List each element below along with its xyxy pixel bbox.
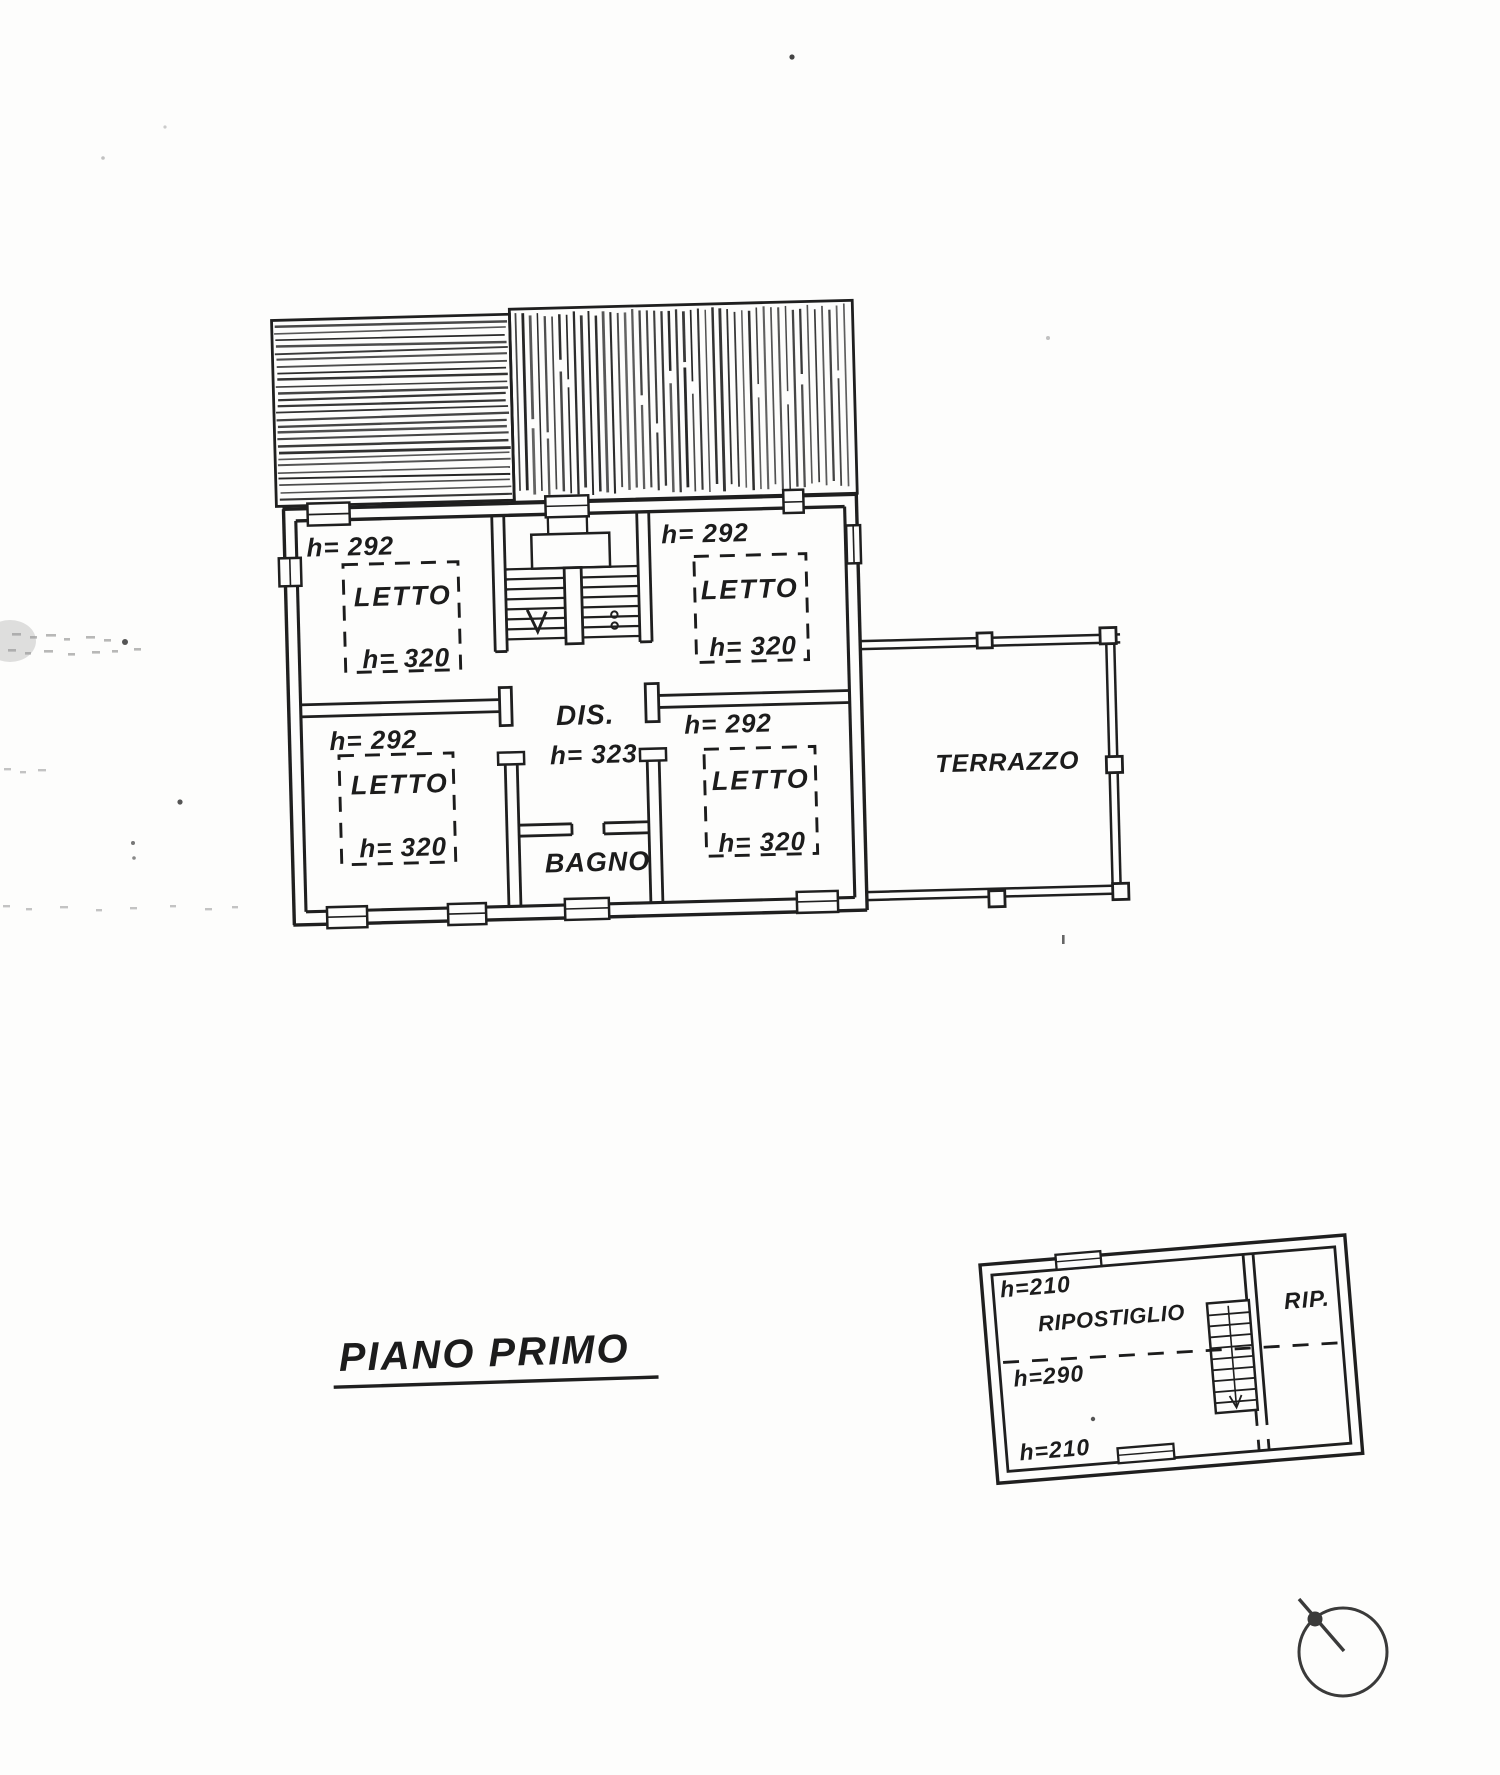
svg-text:DIS.: DIS. — [556, 699, 615, 732]
svg-text:LETTO: LETTO — [711, 764, 810, 797]
svg-text:LETTO: LETTO — [700, 573, 799, 606]
svg-text:h= 320: h= 320 — [359, 831, 447, 863]
svg-text:PIANO PRIMO: PIANO PRIMO — [338, 1327, 630, 1380]
svg-text:LETTO: LETTO — [350, 768, 449, 801]
svg-text:LETTO: LETTO — [353, 580, 452, 613]
svg-text:h= 323: h= 323 — [550, 738, 638, 770]
svg-text:RIP.: RIP. — [1283, 1285, 1331, 1315]
svg-text:h= 320: h= 320 — [709, 630, 797, 662]
svg-text:h= 292: h= 292 — [329, 724, 417, 756]
svg-text:h= 320: h= 320 — [718, 826, 806, 858]
svg-text:h= 292: h= 292 — [684, 708, 772, 740]
svg-text:h= 320: h= 320 — [362, 642, 450, 674]
svg-text:h= 292: h= 292 — [306, 530, 394, 562]
svg-text:BAGNO: BAGNO — [544, 846, 650, 879]
svg-text:h= 292: h= 292 — [661, 517, 749, 549]
svg-text:TERRAZZO: TERRAZZO — [935, 746, 1080, 778]
